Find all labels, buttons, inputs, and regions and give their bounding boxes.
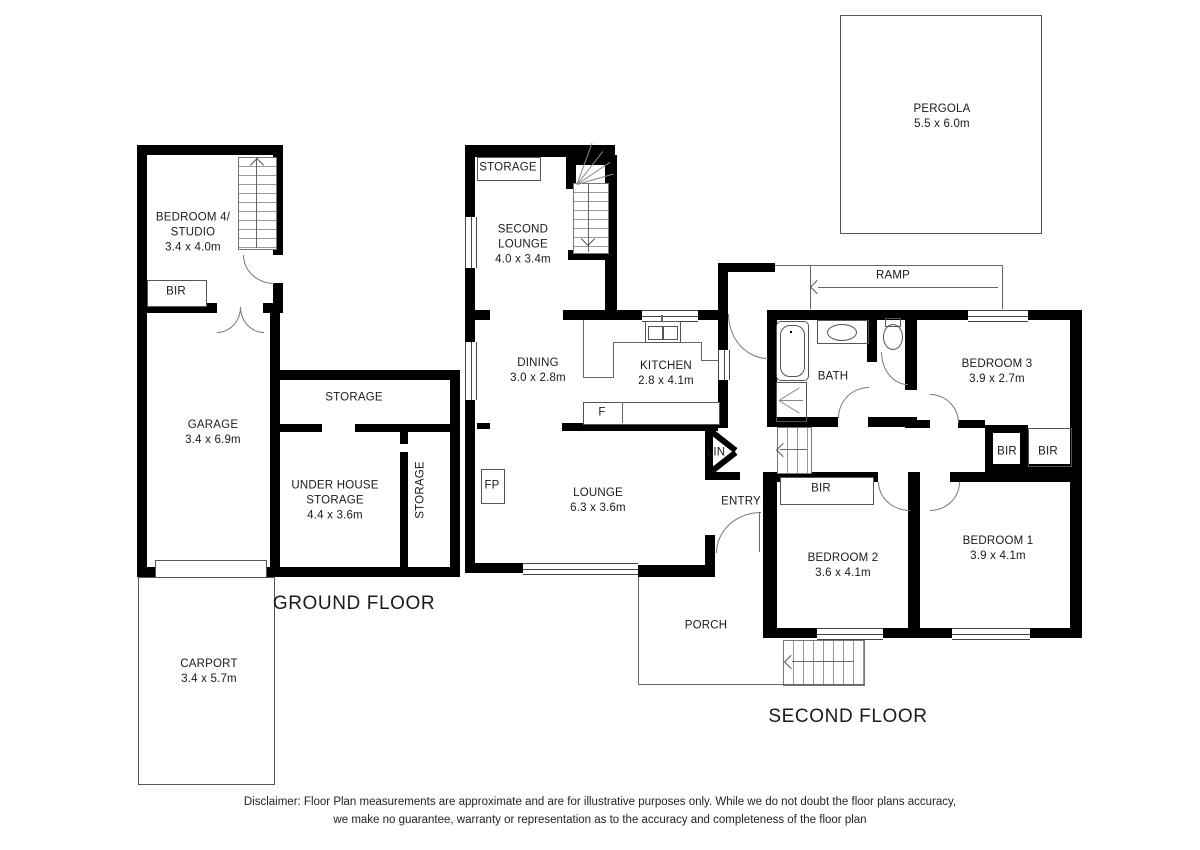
window: [523, 563, 638, 575]
room-label-bedroom4: BEDROOM 4/ STUDIO 3.4 x 4.0m: [156, 211, 230, 256]
room-dims: 3.4 x 5.7m: [180, 672, 237, 687]
door-arc: [930, 394, 959, 423]
room-name: STORAGE: [414, 461, 429, 518]
room-label-storage-side: STORAGE: [414, 461, 429, 518]
garage-door: [155, 560, 267, 578]
wall: [465, 157, 475, 217]
wall: [450, 380, 460, 577]
basin: [827, 324, 857, 341]
room-label-bedroom1: BEDROOM 1 3.9 x 4.1m: [963, 534, 1034, 564]
counter-line: [701, 360, 719, 361]
disclaimer: Disclaimer: Floor Plan measurements are …: [50, 793, 1150, 829]
ramp-arrow-line: [818, 287, 998, 288]
wall: [763, 472, 777, 638]
room-name: BEDROOM 1: [963, 534, 1034, 549]
room-dims: 4.0 x 3.4m: [495, 253, 551, 268]
room-dims: 5.5 x 6.0m: [913, 117, 970, 132]
room-name: STUDIO: [156, 226, 230, 241]
room-label-bir-bedroom4: BIR: [166, 285, 186, 300]
wall: [705, 472, 740, 480]
ramp-label: RAMP: [876, 269, 910, 284]
bathtub-inner: [780, 325, 805, 377]
room-name: UNDER HOUSE: [291, 479, 378, 494]
room-label-second-lounge: SECOND LOUNGE 4.0 x 3.4m: [495, 223, 551, 268]
door-arc: [878, 482, 910, 511]
wall: [400, 432, 408, 444]
room-name: LOUNGE: [495, 238, 551, 253]
room-label-bir-left: BIR: [997, 445, 1017, 460]
wall: [263, 303, 283, 313]
window: [465, 342, 477, 400]
wall: [137, 145, 283, 155]
room-dims: 3.6 x 4.1m: [808, 566, 879, 581]
room-label-bedroom3: BEDROOM 3 3.9 x 2.7m: [962, 357, 1033, 387]
wall: [563, 310, 642, 320]
wall: [905, 420, 930, 428]
wall: [477, 423, 490, 429]
room-dims: 3.4 x 6.9m: [185, 433, 241, 448]
door-arc: [881, 352, 908, 385]
wall: [883, 628, 952, 638]
wall: [638, 565, 715, 577]
wall: [270, 370, 460, 380]
room-dims: 4.4 x 3.6m: [291, 509, 378, 524]
ramp-line: [1002, 265, 1003, 309]
room-name: STORAGE: [479, 161, 536, 176]
floor-title-second: SECOND FLOOR: [768, 706, 927, 728]
room-label-bedroom2: BEDROOM 2 3.6 x 4.1m: [808, 551, 879, 581]
counter-line: [583, 320, 584, 378]
wall: [270, 380, 280, 567]
wall: [767, 310, 968, 320]
entry-door-arc: [716, 512, 761, 553]
bench-divider: [622, 402, 623, 423]
fridge-label: F: [598, 406, 605, 421]
room-label-bath: BATH: [818, 370, 849, 385]
disclaimer-line: we make no guarantee, warranty or repres…: [50, 811, 1150, 829]
sink-bowl: [663, 326, 678, 340]
room-dims: 3.4 x 4.0m: [156, 241, 230, 256]
room-dims: 3.9 x 4.1m: [963, 549, 1034, 564]
ramp-arrow-head: [810, 280, 824, 294]
door-arc: [217, 307, 241, 333]
wall: [137, 145, 147, 577]
floor-title-ground: GROUND FLOOR: [273, 593, 435, 615]
wall: [400, 452, 408, 567]
sink-bowl: [648, 326, 663, 340]
room-name: DINING: [510, 356, 566, 371]
wall: [763, 628, 817, 638]
floor-plan: PERGOLA 5.5 x 6.0m BEDROOM 4/ STUDIO 3.4…: [0, 0, 1200, 850]
wall: [465, 310, 490, 320]
wall: [1030, 628, 1082, 638]
room-label-storage-upper: STORAGE: [325, 391, 382, 406]
wall: [465, 268, 475, 342]
room-label-storage-lounge: STORAGE: [479, 161, 536, 176]
steps-arrow-line: [792, 661, 854, 662]
room-label-dining: DINING 3.0 x 2.8m: [510, 356, 566, 386]
room-label-lounge: LOUNGE 6.3 x 3.6m: [570, 486, 626, 516]
wall: [950, 472, 1082, 482]
entry-door-leaf: [759, 512, 760, 552]
fixture-name: FP: [484, 479, 499, 494]
room-name: GARAGE: [185, 418, 241, 433]
door-arc: [240, 307, 264, 333]
disclaimer-line: Disclaimer: Floor Plan measurements are …: [50, 793, 1150, 811]
fireplace-label: FP: [484, 479, 499, 494]
room-name: BEDROOM 3: [962, 357, 1033, 372]
wall: [465, 400, 475, 573]
window: [817, 628, 883, 640]
room-name: STORAGE: [325, 391, 382, 406]
room-name: CARPORT: [180, 657, 237, 672]
room-name: LOUNGE: [570, 486, 626, 501]
counter-line: [701, 342, 702, 361]
room-dims: 2.8 x 4.1m: [638, 374, 694, 389]
room-label-kitchen: KITCHEN 2.8 x 4.1m: [638, 359, 694, 389]
door-arc: [930, 482, 960, 511]
room-label-pergola: PERGOLA 5.5 x 6.0m: [913, 102, 970, 132]
room-dims: 3.9 x 2.7m: [962, 372, 1033, 387]
wall: [270, 313, 280, 373]
room-name: STORAGE: [291, 494, 378, 509]
counter-line: [583, 377, 614, 378]
room-label-carport: CARPORT 3.4 x 5.7m: [180, 657, 237, 687]
wall: [355, 424, 450, 432]
wall: [718, 320, 728, 350]
porch-outline: [638, 684, 864, 685]
room-name: BATH: [818, 370, 849, 385]
wall: [958, 420, 985, 428]
wall: [280, 424, 322, 432]
wall: [465, 563, 523, 573]
room-name: BEDROOM 4/: [156, 211, 230, 226]
porch-outline: [638, 577, 639, 684]
window: [968, 310, 1028, 322]
window: [465, 217, 477, 268]
room-name: BEDROOM 2: [808, 551, 879, 566]
wall: [718, 263, 728, 320]
room-label-lin: LIN: [707, 446, 726, 461]
bathtub-drain: [790, 331, 792, 333]
room-name: LIN: [707, 446, 726, 461]
staircase: [573, 183, 609, 254]
room-label-bir-bedroom2: BIR: [811, 482, 831, 497]
room-dims: 6.3 x 3.6m: [570, 501, 626, 516]
room-name: BIR: [1038, 445, 1058, 460]
room-name: PORCH: [685, 619, 728, 634]
room-label-under-house-storage: UNDER HOUSE STORAGE 4.4 x 3.6m: [291, 479, 378, 524]
counter-line: [613, 342, 614, 378]
door-arc: [728, 314, 768, 359]
wall: [1070, 310, 1082, 638]
room-name: PERGOLA: [913, 102, 970, 117]
room-name: KITCHEN: [638, 359, 694, 374]
room-label-porch: PORCH: [685, 619, 728, 634]
room-name: SECOND: [495, 223, 551, 238]
room-label-entry: ENTRY: [721, 495, 761, 510]
room-label-garage: GARAGE 3.4 x 6.9m: [185, 418, 241, 448]
shower-line: [779, 400, 803, 401]
sink-tap: [661, 315, 663, 321]
door-arc: [838, 387, 869, 418]
serving-hatch: [718, 350, 730, 380]
fixture-name: F: [598, 406, 605, 421]
room-label-bir-right: BIR: [1038, 445, 1058, 460]
door-arc: [243, 255, 274, 284]
window: [952, 628, 1030, 640]
room-name: RAMP: [876, 269, 910, 284]
room-name: BIR: [166, 285, 186, 300]
room-dims: 3.0 x 2.8m: [510, 371, 566, 386]
room-name: BIR: [811, 482, 831, 497]
room-name: ENTRY: [721, 495, 761, 510]
toilet-bowl: [883, 324, 903, 350]
room-name: BIR: [997, 445, 1017, 460]
